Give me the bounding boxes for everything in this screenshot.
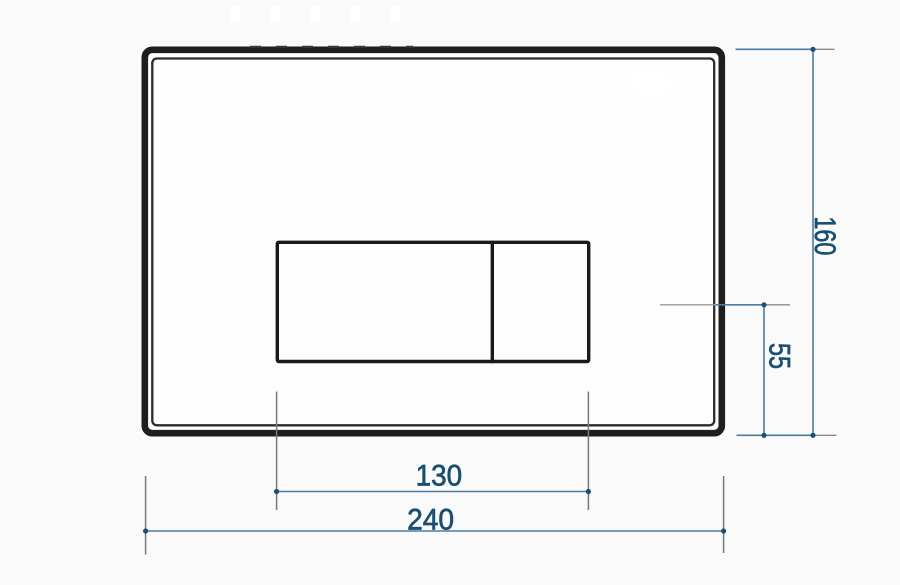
svg-text:55: 55	[762, 343, 795, 369]
svg-text:160: 160	[808, 216, 841, 255]
svg-text:240: 240	[407, 504, 454, 537]
svg-text:130: 130	[416, 459, 463, 492]
